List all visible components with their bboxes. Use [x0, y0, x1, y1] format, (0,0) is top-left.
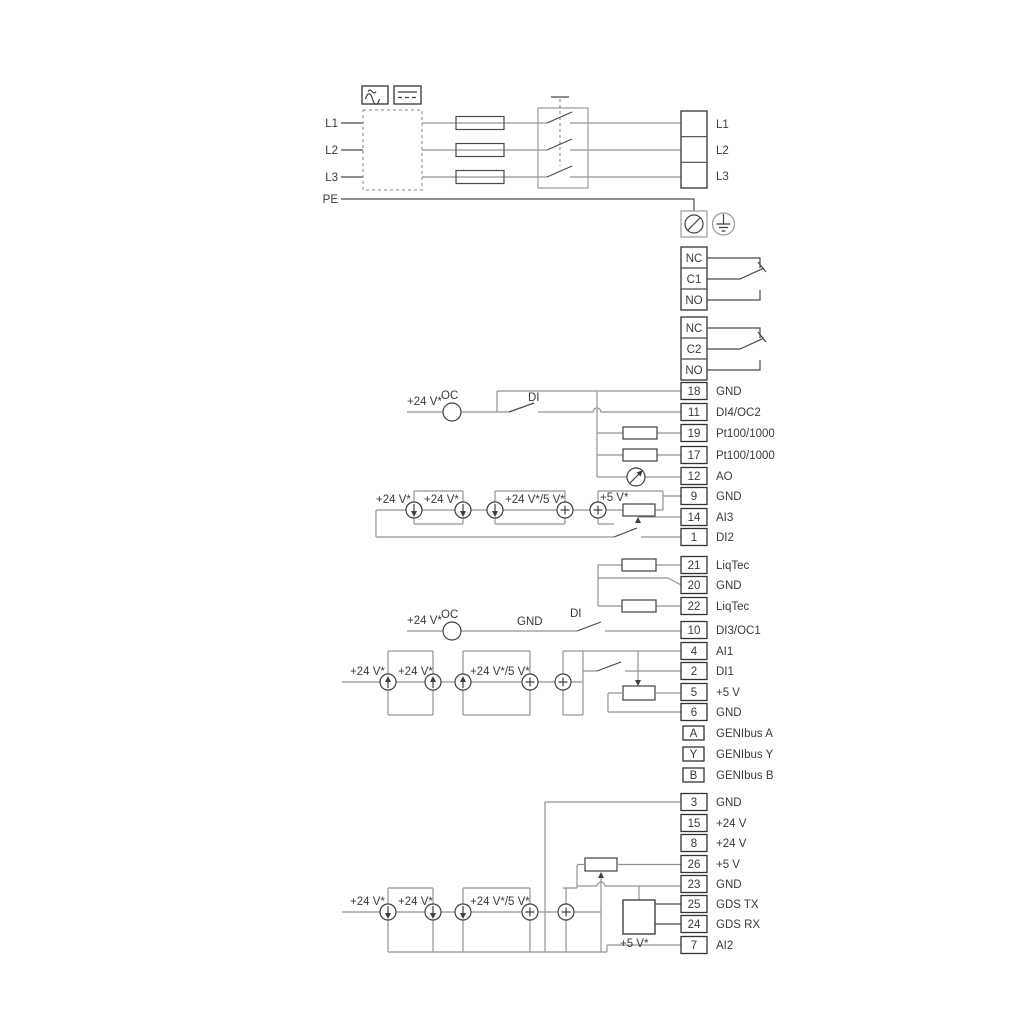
terminal-number: 19	[688, 428, 701, 440]
v24-label: +24 V*	[376, 494, 411, 506]
v24-label: +24 V*	[398, 666, 433, 678]
terminal-number: 21	[688, 560, 701, 572]
v5-label: +5 V*	[600, 492, 629, 504]
relay2-c: C2	[687, 344, 702, 356]
terminal-label: +24 V	[716, 818, 747, 830]
v24-label: +24 V*	[350, 896, 385, 908]
terminal-label: AI1	[716, 646, 733, 658]
diagram-canvas: L1 L2 L3 PE L1 L2	[0, 0, 1024, 1024]
terminal-strip-genibus: A GENIbus A Y GENIbus Y B GENIbus B	[683, 726, 774, 782]
di-label: DI	[528, 392, 540, 404]
terminal-number: 8	[691, 838, 697, 850]
label-l3-in: L3	[325, 172, 338, 184]
terminal-label: GND	[716, 491, 742, 503]
v24-label: +24 V*	[424, 494, 459, 506]
terminal-number: 15	[688, 818, 701, 830]
background	[0, 0, 1024, 1024]
terminal-label: Pt100/1000	[716, 428, 775, 440]
oc-label: OC	[441, 609, 458, 621]
resistor	[623, 427, 657, 439]
terminal-label: GENIbus B	[716, 770, 774, 782]
label-l2-in: L2	[325, 145, 338, 157]
terminal-label: DI1	[716, 666, 734, 678]
terminal-label: AI2	[716, 940, 733, 952]
terminal-number: 11	[688, 407, 700, 419]
v24-label: +24 V*	[398, 896, 433, 908]
v5-label: +5 V*	[620, 938, 649, 950]
terminal-block-mains: L1 L2 L3	[681, 111, 729, 188]
terminal-number: Y	[690, 749, 698, 761]
terminal-label: DI3/OC1	[716, 625, 761, 637]
terminal-label: GDS RX	[716, 919, 760, 931]
meter-icon	[627, 468, 645, 486]
terminal-number: 23	[688, 879, 701, 891]
label-l1-in: L1	[325, 118, 338, 130]
terminal-label: LiqTec	[716, 560, 749, 572]
potentiometer	[585, 858, 617, 871]
terminal-number: 9	[691, 491, 697, 503]
terminal-number: 18	[688, 386, 701, 398]
terminal-label: GND	[716, 580, 742, 592]
terminal-number: 2	[691, 666, 697, 678]
resistor	[622, 600, 656, 612]
terminal-number: 6	[691, 707, 697, 719]
terminal-number: 14	[688, 512, 701, 524]
resistor	[623, 449, 657, 461]
terminal-number: 3	[691, 797, 697, 809]
di-label: DI	[570, 608, 582, 620]
label-l1-out: L1	[716, 119, 729, 131]
terminal-number: 12	[688, 471, 701, 483]
terminal-label: +5 V	[716, 859, 740, 871]
terminal-label: AI3	[716, 512, 733, 524]
gnd-label: GND	[517, 616, 543, 628]
terminal-number: A	[690, 728, 698, 740]
terminal-label: GND	[716, 879, 742, 891]
terminal-label: GND	[716, 707, 742, 719]
terminal-number: 5	[691, 687, 697, 699]
terminal-number: 20	[688, 580, 701, 592]
relay2-nc: NC	[686, 323, 703, 335]
v24-label: +24 V*	[350, 666, 385, 678]
relay1-c: C1	[687, 274, 702, 286]
wiring-diagram: L1 L2 L3 PE L1 L2	[0, 0, 1024, 1024]
oc-label: OC	[441, 390, 458, 402]
terminal-number: 10	[688, 625, 701, 637]
v24-label: +24 V*	[407, 615, 442, 627]
terminal-number: B	[690, 770, 698, 782]
potentiometer	[623, 686, 655, 700]
v24-5v-label: +24 V*/5 V*	[470, 666, 530, 678]
label-pe-in: PE	[323, 194, 339, 206]
terminal-label: GENIbus A	[716, 728, 773, 740]
relay2-no: NO	[685, 365, 702, 377]
terminal-number: 25	[688, 899, 701, 911]
terminal-strip-liqtec: 21 LiqTec 20 GND 22 LiqTec	[681, 557, 749, 615]
terminal-label: GND	[716, 386, 742, 398]
gds-module-box	[623, 900, 655, 934]
ac-symbol-icon	[362, 86, 388, 104]
dc-symbol-icon	[394, 86, 421, 104]
terminal-number: 22	[688, 601, 701, 613]
potentiometer	[623, 504, 655, 516]
terminal-label: LiqTec	[716, 601, 749, 613]
terminal-label: DI2	[716, 532, 734, 544]
terminal-number: 17	[688, 450, 701, 462]
open-collector-icon	[443, 403, 461, 421]
v24-label: +24 V*	[407, 396, 442, 408]
terminal-label: AO	[716, 471, 733, 483]
v24-5v-label: +24 V*/5 V*	[505, 494, 565, 506]
terminal-label: Pt100/1000	[716, 450, 775, 462]
relay1-nc: NC	[686, 253, 703, 265]
terminal-label: +5 V	[716, 687, 740, 699]
relay1-no: NO	[685, 295, 702, 307]
terminal-label: GENIbus Y	[716, 749, 774, 761]
open-collector-icon	[443, 622, 461, 640]
screw-terminal-icon	[681, 211, 707, 237]
terminal-label: +24 V	[716, 838, 747, 850]
terminal-label: GDS TX	[716, 899, 759, 911]
terminal-label: GND	[716, 797, 742, 809]
terminal-label: DI4/OC2	[716, 407, 761, 419]
label-l2-out: L2	[716, 145, 729, 157]
resistor	[622, 559, 656, 571]
terminal-number: 7	[691, 940, 697, 952]
label-l3-out: L3	[716, 171, 729, 183]
terminal-number: 4	[691, 646, 698, 658]
terminal-number: 1	[691, 532, 697, 544]
terminal-number: 24	[688, 919, 701, 931]
v24-5v-label: +24 V*/5 V*	[470, 896, 530, 908]
terminal-number: 26	[688, 859, 701, 871]
